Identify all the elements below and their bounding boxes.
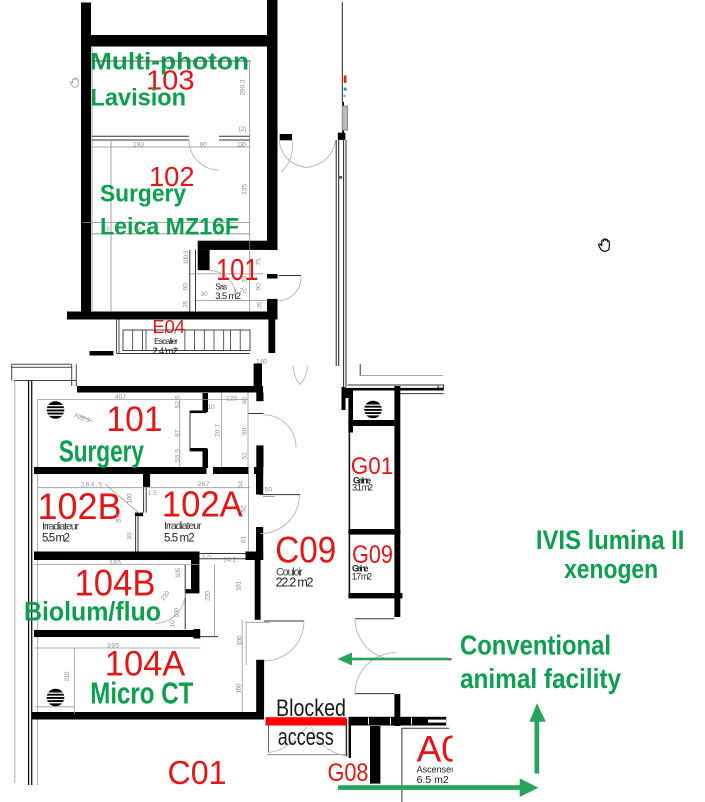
svg-text:G08: G08 xyxy=(328,759,369,787)
svg-text:105: 105 xyxy=(175,568,182,578)
svg-text:2.4 m2: 2.4 m2 xyxy=(153,346,179,357)
svg-text:access: access xyxy=(278,724,334,751)
svg-text:90: 90 xyxy=(183,283,190,291)
svg-text:animal facility: animal facility xyxy=(460,663,621,694)
svg-text:IVIS lumina II: IVIS lumina II xyxy=(536,525,685,555)
svg-text:1.60: 1.60 xyxy=(256,359,267,366)
svg-text:Blocked: Blocked xyxy=(276,695,346,722)
svg-text:120: 120 xyxy=(226,396,237,403)
svg-text:1.7 m2: 1.7 m2 xyxy=(352,572,372,582)
svg-text:100: 100 xyxy=(237,635,244,645)
svg-text:20.7: 20.7 xyxy=(215,424,222,437)
svg-text:95: 95 xyxy=(127,532,134,540)
svg-text:30: 30 xyxy=(136,227,142,233)
svg-text:130: 130 xyxy=(237,142,246,149)
svg-text:1.5: 1.5 xyxy=(148,490,157,497)
svg-text:54: 54 xyxy=(238,480,245,488)
svg-text:61: 61 xyxy=(241,535,248,543)
svg-text:xenogen: xenogen xyxy=(564,554,658,584)
svg-text:Surgery: Surgery xyxy=(59,434,145,469)
svg-text:75: 75 xyxy=(256,258,263,266)
svg-text:293: 293 xyxy=(133,142,144,149)
svg-text:395: 395 xyxy=(107,643,119,650)
svg-text:385: 385 xyxy=(109,560,121,567)
svg-text:90: 90 xyxy=(256,283,263,291)
svg-text:Escalier: Escalier xyxy=(154,336,178,346)
svg-text:50: 50 xyxy=(265,487,273,494)
svg-text:55.5: 55.5 xyxy=(175,449,182,462)
svg-text:220: 220 xyxy=(205,591,212,601)
svg-text:1.70: 1.70 xyxy=(234,288,247,295)
svg-text:35: 35 xyxy=(183,300,190,308)
svg-text:267: 267 xyxy=(198,481,210,488)
svg-text:335: 335 xyxy=(242,184,249,195)
svg-text:97: 97 xyxy=(175,429,182,437)
svg-text:C09: C09 xyxy=(275,529,336,571)
svg-text:E04: E04 xyxy=(153,317,186,337)
svg-text:Conventional: Conventional xyxy=(460,630,611,661)
svg-text:Surgery: Surgery xyxy=(100,181,187,208)
svg-text:14.2: 14.2 xyxy=(223,557,236,564)
svg-text:Biolum/fluo: Biolum/fluo xyxy=(24,597,161,627)
svg-text:150: 150 xyxy=(236,683,243,693)
svg-text:(2): (2) xyxy=(239,126,247,133)
svg-text:35: 35 xyxy=(257,301,264,309)
svg-text:Micro CT: Micro CT xyxy=(90,676,193,711)
svg-text:Multi-photon: Multi-photon xyxy=(90,49,249,76)
svg-text:290.3: 290.3 xyxy=(240,79,247,95)
svg-text:30: 30 xyxy=(200,291,208,298)
svg-text:100: 100 xyxy=(127,493,134,503)
svg-text:Lavision: Lavision xyxy=(91,85,187,112)
svg-text:407: 407 xyxy=(115,394,126,401)
svg-text:6.5 m2: 6.5 m2 xyxy=(417,774,449,786)
svg-text:Irradiateur: Irradiateur xyxy=(164,520,202,532)
svg-text:52: 52 xyxy=(242,452,249,460)
svg-text:100.3: 100.3 xyxy=(183,250,190,264)
svg-text:3.1 m2: 3.1 m2 xyxy=(352,483,373,493)
svg-text:181: 181 xyxy=(236,581,243,591)
svg-text:20: 20 xyxy=(242,275,249,283)
svg-text:90: 90 xyxy=(242,427,249,435)
svg-text:5.5 m2: 5.5 m2 xyxy=(42,533,70,545)
svg-text:90: 90 xyxy=(200,142,208,149)
svg-text:52.5: 52.5 xyxy=(175,395,182,408)
svg-text:5.5 m2: 5.5 m2 xyxy=(164,533,195,545)
svg-text:22.2 m2: 22.2 m2 xyxy=(276,576,314,590)
svg-text:264.5: 264.5 xyxy=(81,482,102,489)
svg-text:205: 205 xyxy=(116,513,123,523)
svg-text:Leica MZ16F: Leica MZ16F xyxy=(100,214,239,241)
svg-text:100: 100 xyxy=(174,608,181,618)
svg-text:10: 10 xyxy=(170,620,177,628)
svg-text:210: 210 xyxy=(64,671,71,681)
svg-text:Irradiateur: Irradiateur xyxy=(42,521,80,533)
svg-text:40: 40 xyxy=(242,397,249,405)
svg-text:1.0: 1.0 xyxy=(202,554,211,561)
svg-text:102A: 102A xyxy=(162,484,243,525)
svg-text:18: 18 xyxy=(104,227,110,233)
svg-text:10: 10 xyxy=(208,404,216,411)
svg-text:C01: C01 xyxy=(168,754,227,791)
svg-text:52: 52 xyxy=(241,505,248,513)
